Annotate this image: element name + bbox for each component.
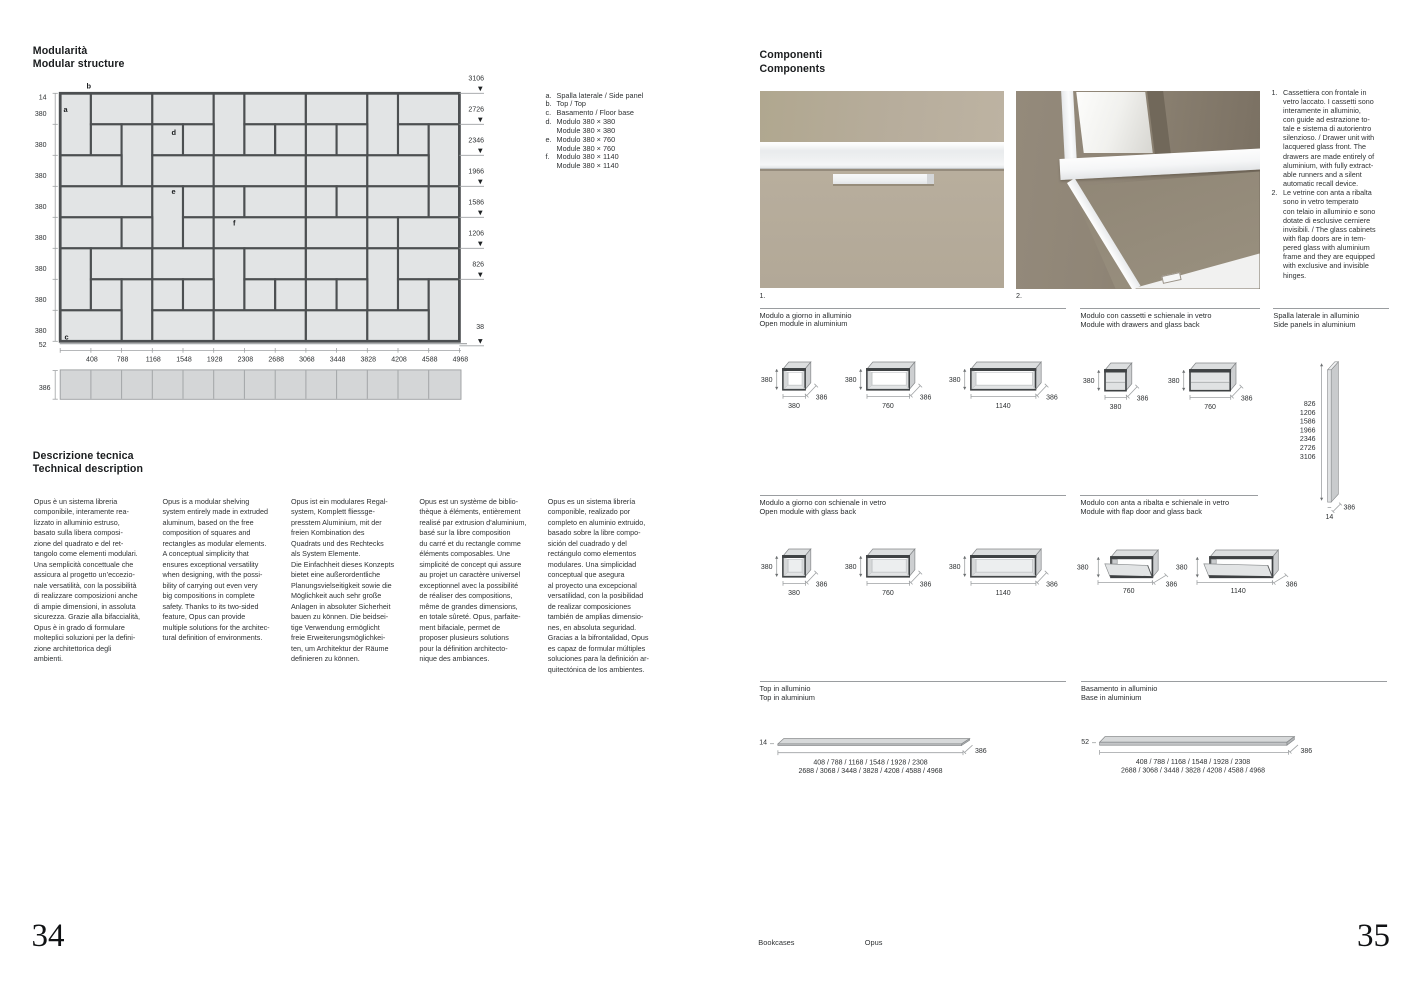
svg-text:4208: 4208: [391, 356, 407, 363]
svg-text:1140: 1140: [1231, 588, 1246, 595]
svg-text:2726: 2726: [1300, 445, 1316, 452]
svg-text:380: 380: [788, 590, 800, 595]
svg-text:386: 386: [1286, 581, 1298, 588]
svg-text:380: 380: [1176, 564, 1188, 571]
svg-text:3106: 3106: [468, 75, 484, 82]
svg-text:14: 14: [759, 740, 767, 747]
svg-text:14: 14: [1326, 514, 1334, 521]
svg-text:3828: 3828: [361, 356, 377, 363]
svg-text:2726: 2726: [468, 106, 484, 113]
svg-text:380: 380: [761, 377, 773, 384]
svg-text:408: 408: [86, 356, 98, 363]
svg-text:380: 380: [845, 377, 857, 384]
svg-text:788: 788: [117, 356, 129, 363]
svg-text:386: 386: [1344, 505, 1356, 512]
svg-text:386: 386: [816, 395, 828, 402]
svg-text:1548: 1548: [176, 356, 192, 363]
svg-text:386: 386: [1046, 581, 1058, 588]
svg-text:826: 826: [472, 261, 484, 268]
svg-text:1966: 1966: [1300, 427, 1316, 434]
svg-text:380: 380: [949, 564, 961, 571]
svg-text:1206: 1206: [1300, 410, 1316, 417]
svg-text:386: 386: [1301, 748, 1313, 755]
svg-text:380: 380: [35, 235, 47, 242]
svg-text:386: 386: [919, 395, 931, 402]
svg-text:386: 386: [1046, 395, 1058, 402]
svg-text:1966: 1966: [468, 168, 484, 175]
svg-text:380: 380: [1077, 564, 1089, 571]
svg-text:760: 760: [1204, 403, 1216, 408]
svg-text:380: 380: [1110, 403, 1122, 408]
svg-text:1586: 1586: [468, 199, 484, 206]
svg-text:2308: 2308: [238, 356, 254, 363]
svg-text:1140: 1140: [996, 403, 1011, 408]
svg-text:380: 380: [949, 377, 961, 384]
svg-text:380: 380: [35, 266, 47, 273]
svg-text:386: 386: [39, 385, 51, 392]
svg-text:380: 380: [35, 328, 47, 335]
svg-text:380: 380: [35, 173, 47, 180]
svg-text:1586: 1586: [1300, 419, 1316, 426]
svg-text:760: 760: [1123, 588, 1135, 595]
svg-text:386: 386: [919, 581, 931, 588]
svg-text:1928: 1928: [207, 356, 223, 363]
svg-text:3068: 3068: [299, 356, 315, 363]
svg-text:380: 380: [845, 564, 857, 571]
svg-text:2688 / 3068 / 3448 / 3828 / 42: 2688 / 3068 / 3448 / 3828 / 4208 / 4588 …: [798, 768, 942, 775]
svg-text:52: 52: [39, 342, 47, 349]
svg-text:38: 38: [476, 324, 484, 331]
svg-text:386: 386: [816, 581, 828, 588]
svg-text:4588: 4588: [422, 356, 438, 363]
svg-text:386: 386: [975, 748, 987, 755]
svg-text:1206: 1206: [468, 230, 484, 237]
svg-text:4968: 4968: [453, 356, 469, 363]
svg-text:3106: 3106: [1300, 454, 1316, 461]
svg-text:c: c: [65, 333, 69, 342]
svg-text:b: b: [87, 82, 92, 91]
svg-text:2346: 2346: [1300, 436, 1316, 443]
svg-text:e: e: [172, 187, 176, 196]
svg-text:2688 / 3068 / 3448 / 3828 / 42: 2688 / 3068 / 3448 / 3828 / 4208 / 4588 …: [1121, 768, 1265, 775]
svg-text:380: 380: [1083, 377, 1095, 384]
svg-text:380: 380: [1168, 377, 1180, 384]
svg-text:760: 760: [882, 590, 894, 595]
svg-text:d: d: [172, 128, 177, 137]
svg-text:1168: 1168: [146, 356, 161, 363]
svg-text:2346: 2346: [468, 137, 484, 144]
svg-text:380: 380: [35, 204, 47, 211]
svg-text:14: 14: [39, 94, 47, 101]
svg-text:380: 380: [788, 403, 800, 408]
svg-text:380: 380: [35, 111, 47, 118]
svg-text:408 / 788 / 1168 / 1548 / 1928: 408 / 788 / 1168 / 1548 / 1928 / 2308: [813, 759, 927, 766]
svg-text:3448: 3448: [330, 356, 346, 363]
svg-text:760: 760: [882, 403, 894, 408]
svg-text:380: 380: [35, 297, 47, 304]
svg-text:1140: 1140: [996, 590, 1011, 595]
svg-text:380: 380: [35, 142, 47, 149]
svg-text:386: 386: [1241, 395, 1253, 402]
svg-text:52: 52: [1081, 739, 1089, 746]
svg-text:2688: 2688: [268, 356, 284, 363]
svg-text:826: 826: [1304, 401, 1316, 408]
svg-text:386: 386: [1137, 395, 1149, 402]
svg-text:380: 380: [761, 564, 773, 571]
svg-text:408 / 788 / 1168 / 1548 / 1928: 408 / 788 / 1168 / 1548 / 1928 / 2308: [1136, 759, 1250, 766]
